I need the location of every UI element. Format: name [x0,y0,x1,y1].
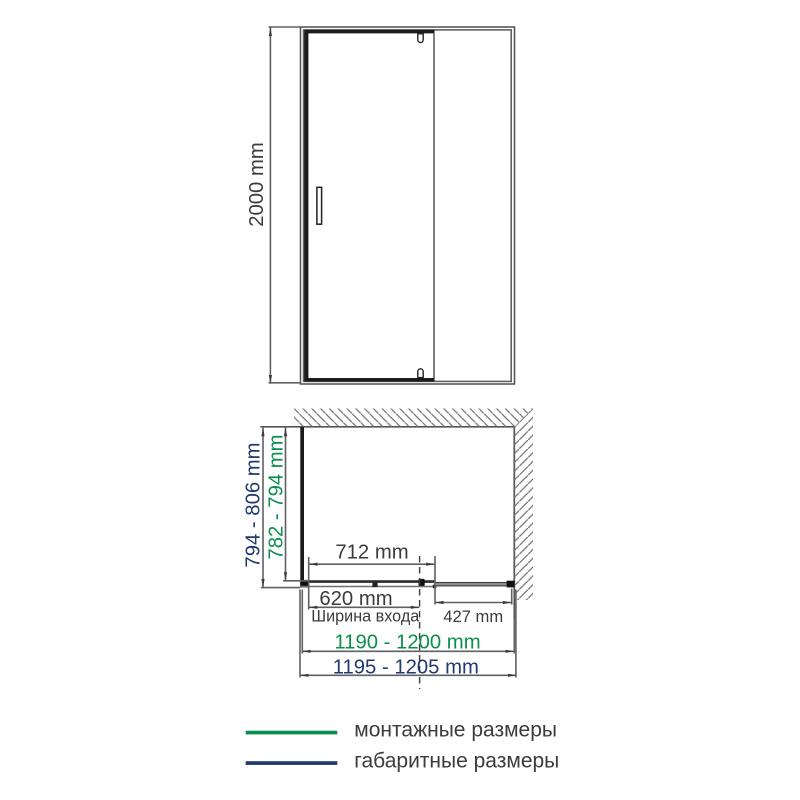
svg-text:Ширина входа: Ширина входа [311,608,419,626]
svg-text:монтажные размеры: монтажные размеры [354,719,557,742]
svg-text:427 mm: 427 mm [443,607,503,626]
svg-text:2000 mm: 2000 mm [246,142,268,227]
svg-text:782 - 794 mm: 782 - 794 mm [266,434,288,559]
svg-text:1190 - 1200 mm: 1190 - 1200 mm [334,632,480,654]
svg-text:габаритные размеры: габаритные размеры [354,749,559,772]
svg-text:1195 - 1205 mm: 1195 - 1205 mm [333,657,479,679]
svg-text:794 - 806 mm: 794 - 806 mm [243,442,265,567]
svg-text:712 mm: 712 mm [335,542,408,564]
